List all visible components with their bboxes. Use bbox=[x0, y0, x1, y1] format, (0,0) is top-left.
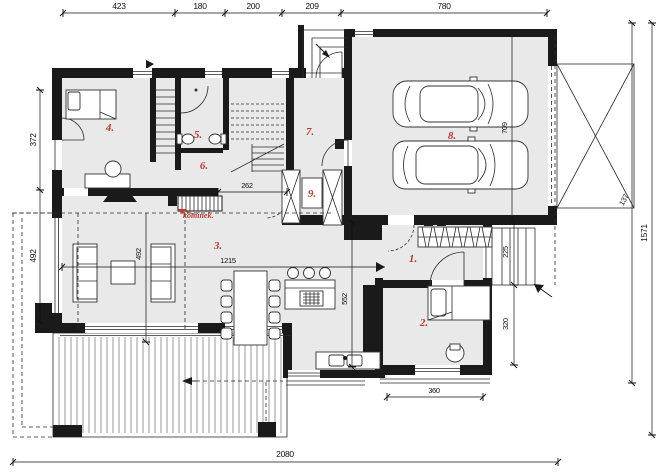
chair-icon bbox=[105, 161, 121, 177]
dim-492-interior: 492 bbox=[134, 248, 143, 260]
car-bottom bbox=[393, 137, 528, 193]
terrace-post-left bbox=[53, 425, 82, 437]
kitchen-sink bbox=[316, 352, 380, 369]
sofa-left bbox=[73, 244, 97, 302]
floor-plan-svg: 423 180 200 209 780 372 492 1571 2080 26… bbox=[0, 0, 660, 474]
dim-552: 552 bbox=[340, 293, 349, 305]
kitchen-island bbox=[285, 268, 335, 310]
kitchen-tall-unit bbox=[363, 285, 375, 357]
sofa-right bbox=[151, 244, 175, 302]
dim-137: 137 bbox=[617, 192, 630, 207]
dim-top-180: 180 bbox=[193, 1, 207, 11]
canopy bbox=[557, 64, 634, 208]
fireplace-label: kominek. bbox=[183, 211, 213, 220]
room-label-9: 9. bbox=[308, 188, 316, 200]
dim-top-200: 200 bbox=[246, 1, 260, 11]
fireplace-annotation: kominek. bbox=[178, 209, 213, 220]
dim-1215: 1215 bbox=[220, 256, 236, 265]
bed-room4 bbox=[66, 90, 116, 119]
room-label-1: 1. bbox=[409, 253, 417, 265]
room-label-7: 7. bbox=[306, 126, 314, 138]
side-steps bbox=[492, 228, 552, 297]
dim-left-372: 372 bbox=[28, 133, 38, 147]
dim-709: 709 bbox=[500, 122, 509, 134]
floor-plan-image: 423 180 200 209 780 372 492 1571 2080 26… bbox=[0, 0, 660, 474]
dim-360: 360 bbox=[428, 386, 440, 395]
toilet-tank bbox=[177, 134, 182, 144]
dim-225: 225 bbox=[501, 246, 510, 258]
dim-top-209: 209 bbox=[305, 1, 319, 11]
sink-icon bbox=[209, 134, 221, 144]
room-label-5: 5. bbox=[194, 129, 202, 141]
dim-top-780: 780 bbox=[437, 1, 451, 11]
terrace-post-right bbox=[258, 422, 276, 437]
room-label-4: 4. bbox=[105, 122, 114, 134]
dim-right-1571: 1571 bbox=[639, 224, 649, 242]
room-label-2: 2. bbox=[419, 317, 428, 329]
wardrobe-room1 bbox=[418, 227, 492, 247]
toilet-icon bbox=[182, 134, 194, 144]
bed-room2 bbox=[428, 286, 490, 320]
room-label-3: 3. bbox=[213, 240, 222, 252]
coffee-table bbox=[111, 261, 135, 284]
dim-320: 320 bbox=[501, 318, 510, 330]
dim-262: 262 bbox=[241, 181, 253, 190]
room-label-8: 8. bbox=[448, 130, 456, 142]
dim-left-492: 492 bbox=[28, 249, 38, 263]
dim-top-423: 423 bbox=[112, 1, 126, 11]
room-label-6: 6. bbox=[200, 160, 208, 172]
side-entry-arrow bbox=[534, 284, 544, 293]
dim-bottom-2080: 2080 bbox=[276, 449, 294, 459]
sink-tank bbox=[221, 134, 226, 144]
